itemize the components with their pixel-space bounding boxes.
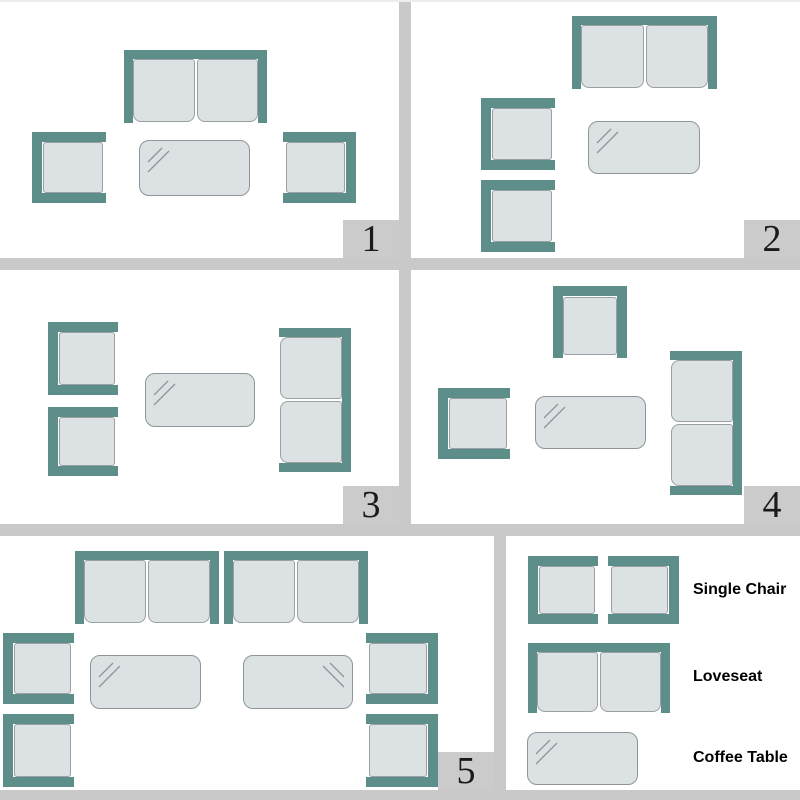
coffee-table (588, 121, 700, 174)
coffee-table (535, 396, 646, 449)
coffee-table (243, 655, 353, 709)
top-edge-line (0, 0, 800, 2)
loveseat (124, 50, 267, 123)
panel-number-badge: 2 (744, 220, 800, 258)
single-chair (48, 322, 118, 395)
glass-reflection-icon (541, 401, 571, 431)
loveseat (75, 551, 219, 624)
legend-single-chair (608, 556, 679, 624)
furniture-layer (411, 0, 800, 258)
layout-panel-4: 4 (411, 270, 800, 524)
coffee-table (145, 373, 255, 427)
single-chair (3, 714, 74, 787)
loveseat (670, 351, 742, 495)
panel-number: 4 (763, 486, 782, 524)
panel-number-badge: 1 (343, 220, 399, 258)
single-chair (481, 98, 555, 170)
furniture-layer (0, 536, 494, 790)
single-chair (366, 633, 438, 704)
single-chair (3, 633, 74, 704)
panel-number: 2 (763, 220, 782, 258)
loveseat (224, 551, 368, 624)
legend-loveseat (528, 643, 670, 713)
single-chair (48, 407, 118, 476)
vertical-divider (494, 536, 506, 790)
coffee-table (139, 140, 250, 196)
single-chair (32, 132, 106, 203)
single-chair (438, 388, 510, 459)
layout-panel-2: 2 (411, 0, 800, 258)
glass-reflection-icon (317, 660, 347, 690)
layout-panel-3: 3 (0, 270, 399, 524)
furniture-layer (411, 270, 800, 524)
layout-panel-1: 1 (0, 0, 399, 258)
legend-label-loveseat: Loveseat (693, 668, 762, 686)
panel-number-badge: 3 (343, 486, 399, 524)
layout-panel-5: 5 (0, 536, 494, 790)
glass-reflection-icon (151, 378, 181, 408)
legend-coffee-table (527, 732, 638, 785)
glass-reflection-icon (96, 660, 126, 690)
glass-reflection-icon (533, 737, 563, 767)
single-chair (553, 286, 627, 358)
glass-reflection-icon (145, 145, 175, 175)
furniture-layer (0, 270, 399, 524)
panel-number: 3 (362, 486, 381, 524)
loveseat (279, 328, 351, 472)
glass-reflection-icon (594, 126, 624, 156)
bottom-strip (0, 790, 800, 800)
panel-number-badge: 5 (438, 752, 494, 790)
furniture-layer (0, 0, 399, 258)
legend-label-single-chair: Single Chair (693, 581, 786, 599)
single-chair (481, 180, 555, 252)
single-chair (366, 714, 438, 787)
coffee-table (90, 655, 201, 709)
legend-label-coffee-table: Coffee Table (693, 749, 788, 767)
horizontal-divider (0, 524, 800, 536)
panel-number: 1 (362, 220, 381, 258)
legend-panel: Single Chair Loveseat Coffee Table (506, 536, 800, 790)
panel-number: 5 (457, 752, 476, 790)
horizontal-divider (0, 258, 800, 270)
legend-single-chair (528, 556, 598, 624)
panel-number-badge: 4 (744, 486, 800, 524)
single-chair (283, 132, 356, 203)
loveseat (572, 16, 717, 89)
furniture-layout-diagram: 1 2 3 4 5 Single Chair Loveseat Coffee T… (0, 0, 800, 800)
